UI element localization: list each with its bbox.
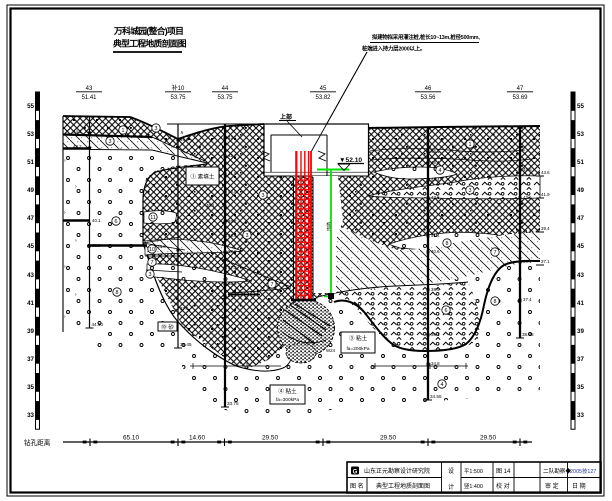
svg-text:43.1: 43.1 [228, 135, 237, 140]
svg-text:3: 3 [469, 188, 472, 194]
svg-text:40.1: 40.1 [92, 218, 101, 223]
svg-text:29.50: 29.50 [480, 435, 496, 442]
svg-text:29.50: 29.50 [262, 435, 278, 442]
svg-text:1: 1 [122, 128, 125, 134]
svg-text:校 对: 校 对 [496, 482, 510, 490]
svg-text:41: 41 [27, 300, 34, 307]
svg-text:① 素填土: ① 素填土 [191, 172, 215, 180]
svg-text:G: G [353, 469, 358, 475]
svg-text:⑩ 砂: ⑩ 砂 [161, 323, 174, 331]
svg-text:上部: 上部 [280, 113, 292, 121]
svg-text:37.9: 37.9 [228, 249, 237, 254]
svg-text:46: 46 [425, 86, 432, 92]
svg-text:33: 33 [577, 412, 584, 419]
svg-text:55: 55 [577, 103, 584, 110]
svg-text:38.9: 38.9 [92, 243, 101, 248]
svg-text:44.10: 44.10 [92, 322, 104, 327]
svg-text:38.6: 38.6 [228, 233, 237, 238]
svg-text:53.75: 53.75 [170, 95, 186, 101]
svg-text:53: 53 [27, 131, 34, 138]
svg-text:6: 6 [445, 308, 448, 314]
svg-text:43.5: 43.5 [431, 195, 440, 200]
svg-text:计: 计 [448, 483, 454, 491]
svg-text:审 定: 审 定 [545, 482, 559, 490]
svg-text:39: 39 [27, 328, 34, 335]
svg-text:35: 35 [577, 384, 584, 391]
svg-text:39.1: 39.1 [523, 259, 532, 264]
svg-text:37: 37 [577, 356, 584, 363]
svg-text:桩端进入持力层2000以上。: 桩端进入持力层2000以上。 [362, 45, 425, 53]
svg-text:41: 41 [577, 300, 584, 307]
svg-text:38.6: 38.6 [157, 244, 166, 249]
svg-text:竖1:400: 竖1:400 [464, 482, 483, 490]
svg-text:55: 55 [27, 103, 34, 110]
svg-text:6: 6 [115, 219, 118, 225]
svg-text:40.1: 40.1 [206, 203, 215, 208]
svg-text:图 名: 图 名 [350, 482, 364, 490]
svg-text:2005技127: 2005技127 [570, 467, 596, 475]
svg-text:51: 51 [577, 159, 584, 166]
svg-text:37.1: 37.1 [541, 259, 550, 264]
svg-text:41.2: 41.2 [523, 229, 532, 234]
svg-text:43: 43 [86, 86, 93, 92]
svg-text:39: 39 [577, 328, 584, 335]
svg-text:8: 8 [116, 290, 119, 296]
svg-text:43: 43 [27, 272, 34, 279]
svg-text:53.75: 53.75 [217, 95, 233, 101]
svg-text:二队勘察◆: 二队勘察◆ [543, 467, 571, 475]
svg-text:65.10: 65.10 [123, 435, 139, 442]
svg-text:35.9: 35.9 [228, 293, 237, 298]
svg-text:37.4: 37.4 [523, 297, 532, 302]
svg-text:41.9: 41.9 [541, 192, 550, 197]
svg-text:45.4: 45.4 [431, 160, 440, 165]
svg-text:④ 粘土: ④ 粘土 [278, 387, 297, 395]
svg-text:3: 3 [155, 126, 158, 132]
svg-text:37.2: 37.2 [228, 265, 237, 270]
svg-text:41.4: 41.4 [431, 233, 440, 238]
svg-text:38.5: 38.5 [431, 287, 440, 292]
svg-text:40.6: 40.6 [431, 249, 440, 254]
svg-text:49: 49 [27, 187, 34, 194]
svg-text:8: 8 [446, 241, 449, 247]
svg-text:44.4: 44.4 [431, 177, 440, 182]
svg-text:∧: ∧ [180, 130, 184, 136]
svg-text:钻孔距离: 钻孔距离 [24, 438, 51, 447]
svg-text:③ 粘土: ③ 粘土 [349, 334, 368, 342]
svg-text:4: 4 [439, 168, 442, 174]
svg-text:3: 3 [246, 233, 249, 239]
svg-text:29.50: 29.50 [380, 435, 396, 442]
svg-text:拟建物拟采用灌注桩,桩长10~13m,桩径500mm,: 拟建物拟采用灌注桩,桩长10~13m,桩径500mm, [372, 33, 480, 41]
svg-text:典型工程地质剖面图: 典型工程地质剖面图 [113, 38, 187, 49]
svg-text:7: 7 [271, 282, 274, 288]
svg-text:51: 51 [27, 159, 34, 166]
svg-text:45: 45 [27, 243, 34, 250]
svg-text:46.3: 46.3 [180, 137, 189, 142]
svg-text:3: 3 [149, 272, 152, 278]
svg-text:43.6: 43.6 [541, 170, 550, 175]
svg-text:7: 7 [151, 260, 154, 266]
svg-text:14.60: 14.60 [189, 435, 205, 442]
svg-text:37.6: 37.6 [180, 306, 189, 311]
svg-text:53.69: 53.69 [512, 95, 528, 101]
svg-text:3: 3 [109, 139, 112, 145]
svg-text:43.2: 43.2 [73, 144, 82, 149]
svg-text:补10: 补10 [172, 84, 185, 92]
svg-text:34.8: 34.8 [431, 361, 440, 366]
svg-text:53.56: 53.56 [420, 95, 436, 101]
svg-text:45: 45 [320, 86, 327, 92]
svg-text:33.75: 33.75 [227, 401, 239, 406]
svg-text:1: 1 [469, 142, 472, 148]
svg-text:7: 7 [494, 250, 497, 256]
svg-text:45.6: 45.6 [523, 167, 532, 172]
svg-text:47: 47 [27, 215, 34, 222]
svg-text:37: 37 [27, 356, 34, 363]
svg-text:44.1: 44.1 [73, 129, 82, 134]
svg-text:44: 44 [222, 86, 229, 92]
svg-text:49: 49 [577, 187, 584, 194]
svg-text:fa=300kPa: fa=300kPa [276, 397, 299, 403]
svg-text:4: 4 [441, 382, 444, 388]
svg-text:51.41: 51.41 [81, 95, 97, 101]
svg-text:36.1: 36.1 [431, 332, 440, 337]
svg-text:桩长: 桩长 [326, 221, 332, 233]
svg-text:11: 11 [150, 215, 156, 221]
svg-text:41.5: 41.5 [228, 171, 237, 176]
svg-text:47: 47 [577, 215, 584, 222]
svg-text:40.8: 40.8 [228, 189, 237, 194]
svg-text:33: 33 [27, 412, 34, 419]
svg-text:45: 45 [577, 243, 584, 250]
svg-text:图 14: 图 14 [496, 468, 511, 475]
svg-text:设: 设 [448, 467, 454, 475]
svg-text:39.4: 39.4 [541, 226, 550, 231]
svg-text:47: 47 [517, 86, 524, 92]
svg-text:53: 53 [577, 131, 584, 138]
svg-text:3: 3 [262, 193, 265, 199]
svg-text:平1:500: 平1:500 [464, 468, 483, 475]
svg-text:fa=200kPa: fa=200kPa [346, 346, 369, 352]
svg-text:38.88: 38.88 [522, 332, 534, 337]
svg-text:43.6: 43.6 [523, 195, 532, 200]
svg-text:36.5: 36.5 [228, 281, 237, 286]
svg-text:39.2: 39.2 [228, 219, 237, 224]
svg-text:10: 10 [149, 247, 155, 253]
svg-text:42.2: 42.2 [228, 153, 237, 158]
svg-text:日 期: 日 期 [572, 482, 586, 490]
svg-text:34.55: 34.55 [430, 394, 442, 399]
svg-text:典型工程地质剖面图: 典型工程地质剖面图 [376, 482, 430, 490]
svg-text:53.82: 53.82 [315, 95, 331, 101]
svg-text:43: 43 [577, 272, 584, 279]
svg-text:39.45: 39.45 [180, 342, 192, 347]
svg-text:W24: W24 [326, 348, 336, 353]
svg-text:35: 35 [27, 384, 34, 391]
svg-text:万科城园(整合)项目: 万科城园(整合)项目 [113, 25, 183, 36]
svg-text:8: 8 [494, 299, 497, 305]
svg-text:山东正元勘察设计研究院: 山东正元勘察设计研究院 [364, 467, 430, 475]
svg-text:46.1: 46.1 [431, 149, 440, 154]
